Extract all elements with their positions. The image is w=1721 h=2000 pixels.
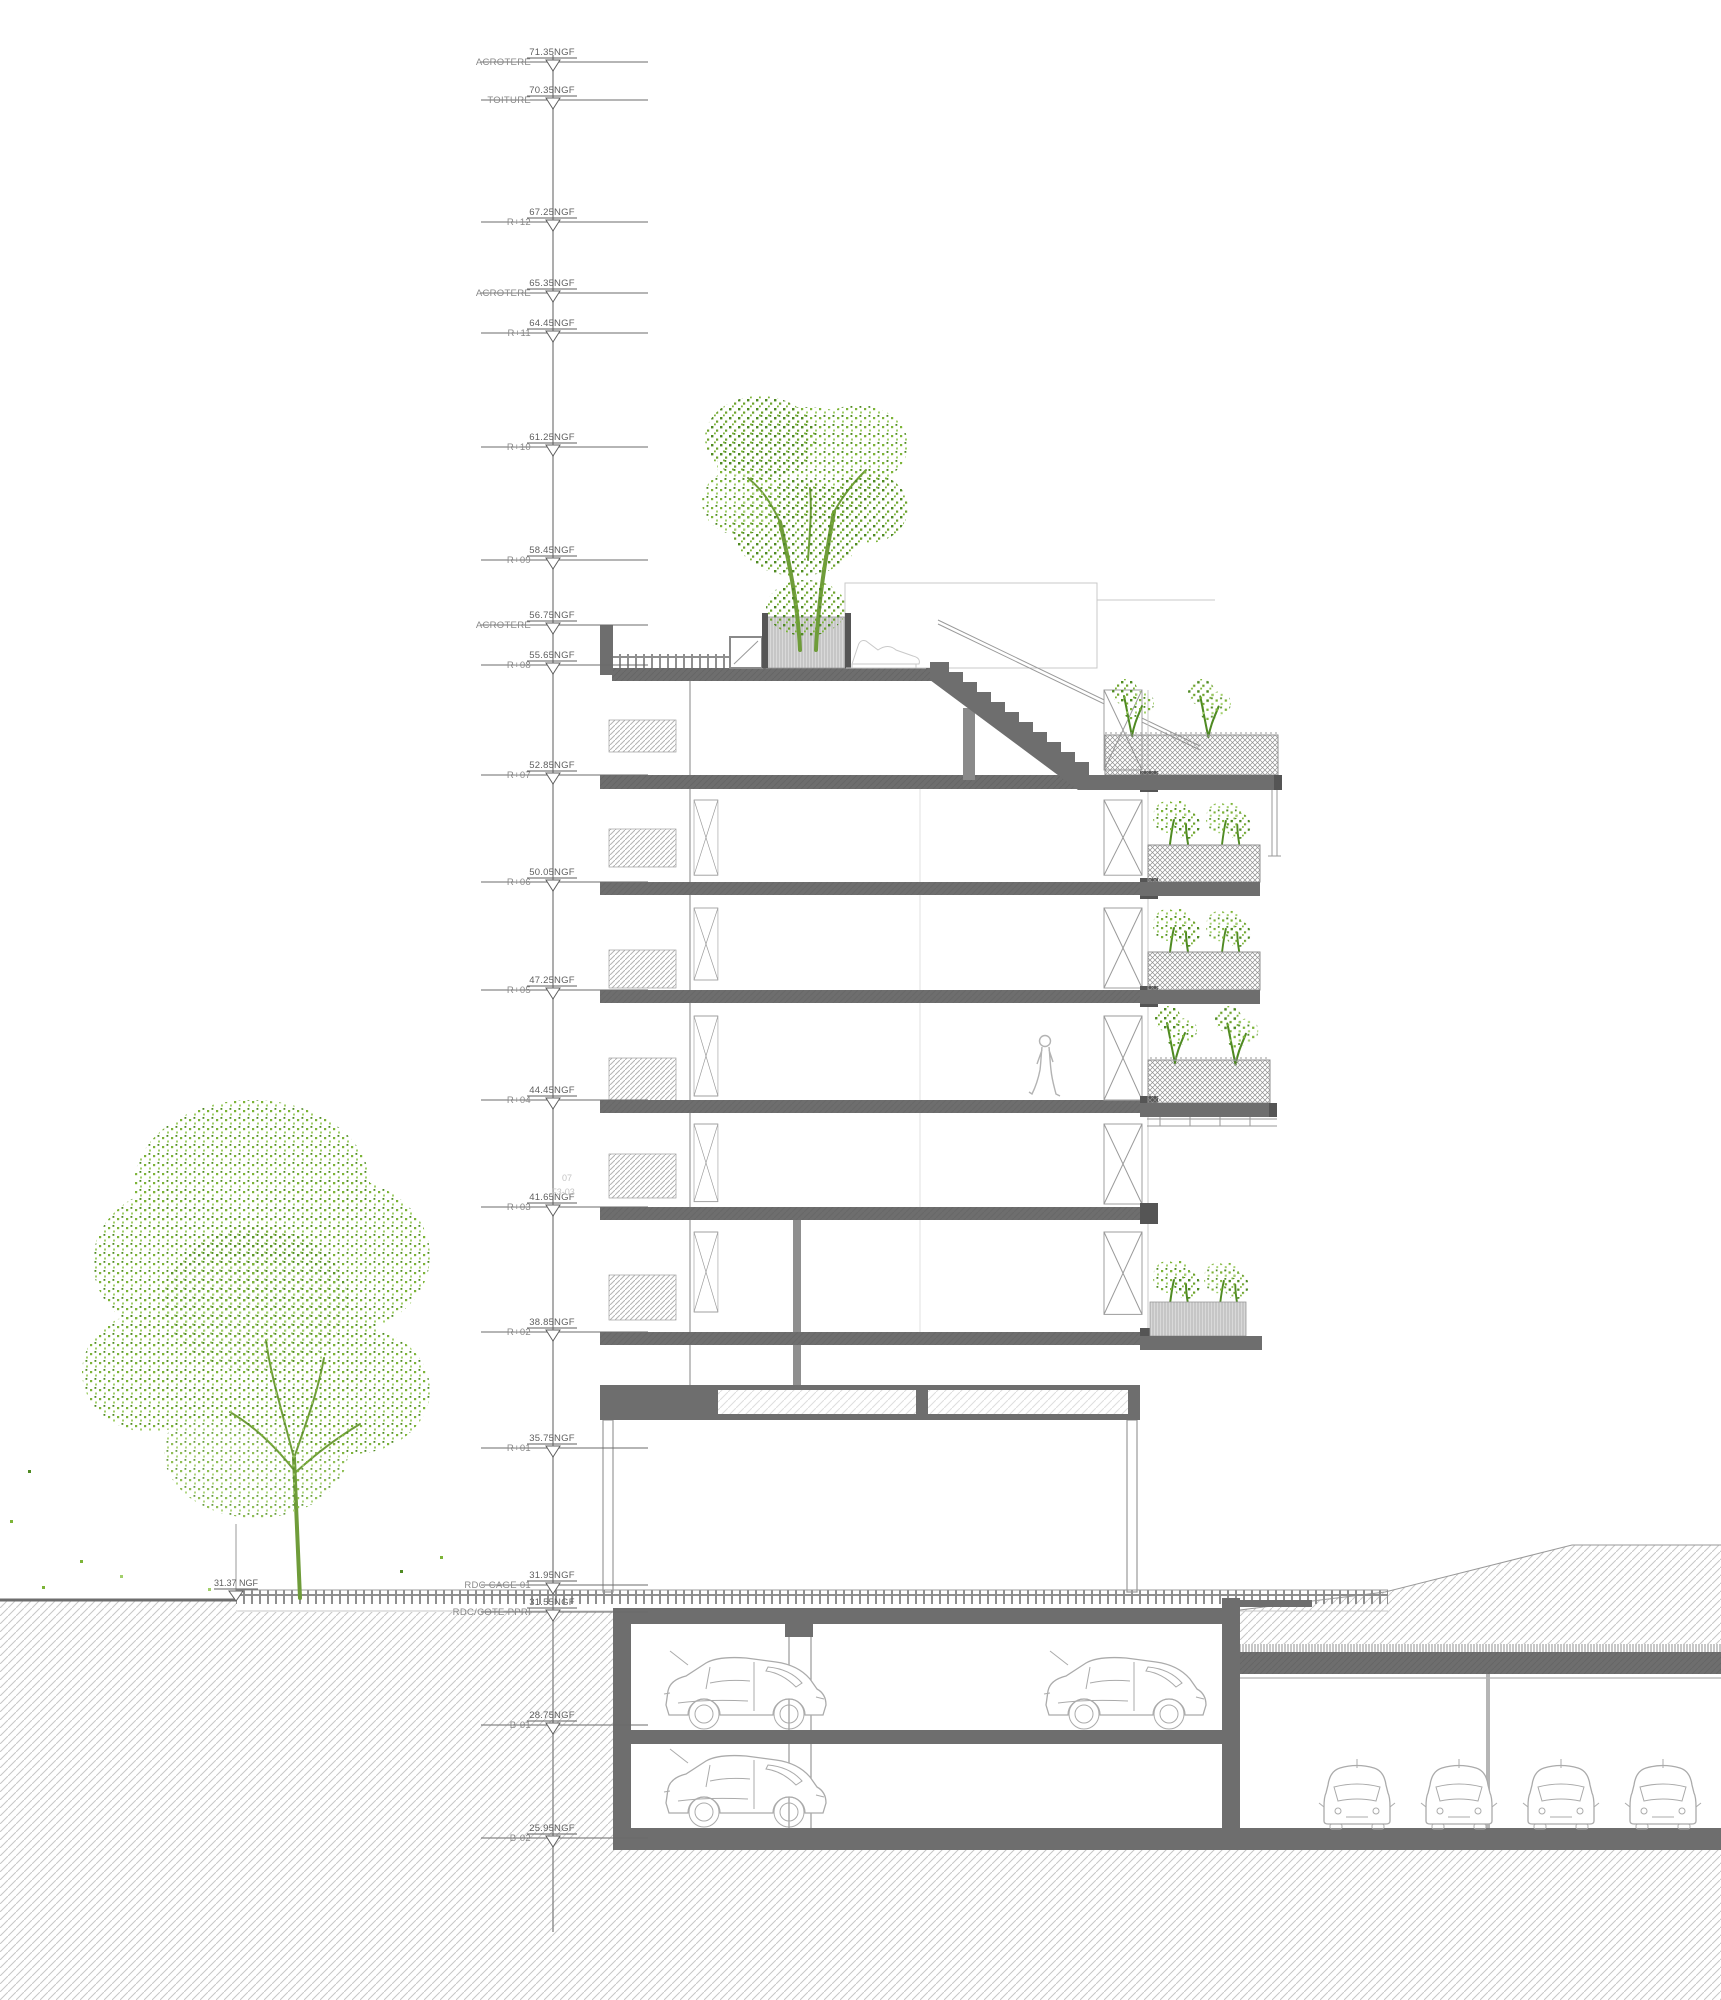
section-drawing-canvas: ACROTERE71.35NGFTOITURE70.35NGFR+1267.25… <box>0 0 1721 2000</box>
support-wall-right <box>1127 1420 1137 1592</box>
level-name: R+11 <box>508 328 531 339</box>
level-value: 47.25NGF <box>529 975 574 986</box>
parked-car-front-3 <box>1523 1759 1599 1829</box>
level-value: 38.85NGF <box>529 1317 574 1328</box>
ceiling-beam <box>785 1620 813 1637</box>
balcony-r06 <box>1140 801 1260 896</box>
roof-tree <box>702 396 908 650</box>
level-value: 55.65NGF <box>529 650 574 661</box>
level-value: 52.85NGF <box>529 760 574 771</box>
parked-car-b01-right <box>1044 1651 1206 1729</box>
level-value: 50.05NGF <box>529 867 574 878</box>
level-name: ACROTERE <box>476 620 531 631</box>
parked-car-front-4 <box>1625 1759 1701 1829</box>
level-name: B-02 <box>510 1833 531 1844</box>
level-name: R+09 <box>507 555 531 566</box>
level-value: 28.75NGF <box>529 1710 574 1721</box>
basement-wall-right <box>1222 1598 1240 1850</box>
right-bay-ceiling-slab-hatch <box>1240 1652 1721 1674</box>
level-value: 71.35NGF <box>529 47 574 58</box>
basement-wall-left <box>613 1608 631 1850</box>
level-marker: R+1164.45NGF <box>481 318 648 342</box>
window-left-r03 <box>694 1232 718 1312</box>
level-value: 31.55NGF <box>529 1597 574 1608</box>
basement-bottom-slab <box>613 1828 1721 1850</box>
stair-wall <box>963 708 975 780</box>
window-left-r05 <box>694 1016 718 1096</box>
level-marker: ACROTERE65.35NGF <box>476 278 648 302</box>
entry-ledge <box>1240 1600 1312 1607</box>
level-marker: TOITURE70.35NGF <box>481 85 648 109</box>
balcony-r04 <box>1140 1006 1277 1126</box>
level-marker: R+1267.25NGF <box>481 207 648 231</box>
person-figure <box>1029 1036 1060 1097</box>
level-name: ACROTERE <box>476 57 531 68</box>
level-name: ACROTERE <box>476 288 531 299</box>
rdc-slab <box>613 1608 1240 1624</box>
window-right-r07 <box>1104 800 1142 875</box>
stair-handrail-2 <box>938 624 1200 750</box>
lounge-chair <box>846 641 926 668</box>
level-name: R+01 <box>507 1443 531 1454</box>
window-left-r06 <box>694 908 718 980</box>
left-facade-windows <box>694 800 718 1312</box>
level-marker: R+1061.25NGF <box>481 432 648 456</box>
ramp-drain-strip <box>1240 1644 1721 1652</box>
level-value: 35.75NGF <box>529 1433 574 1444</box>
roof-bulkhead-outline <box>845 583 1097 668</box>
level-value: 44.45NGF <box>529 1085 574 1096</box>
ground-tree <box>10 1100 443 1598</box>
level-value: 58.45NGF <box>529 545 574 556</box>
balcony-r05 <box>1140 909 1260 1004</box>
level-value: 31.95NGF <box>529 1570 574 1581</box>
level-marker: ACROTERE56.75NGF <box>476 610 648 634</box>
parked-car-b02 <box>664 1749 826 1827</box>
section-drawing: ACROTERE71.35NGFTOITURE70.35NGFR+1267.25… <box>0 0 1721 2000</box>
deck-balustrade-strip <box>236 1590 1388 1604</box>
level-name: R+07 <box>507 770 531 781</box>
level-name: R+02 <box>507 1327 531 1338</box>
window-right-r05 <box>1104 1016 1142 1100</box>
interior-partitions <box>793 788 920 1385</box>
level-value: 56.75NGF <box>529 610 574 621</box>
stair-handrail <box>938 620 1200 746</box>
level-marker: R+0135.75NGF <box>481 1433 648 1457</box>
window-right-r03 <box>1104 1232 1142 1314</box>
parked-car-front-1 <box>1319 1759 1395 1829</box>
level-marker: R+0958.45NGF <box>481 545 648 569</box>
support-wall-left <box>603 1420 613 1592</box>
unit-annotation-line2: F3-03 <box>551 1187 575 1197</box>
level-value: 25.95NGF <box>529 1823 574 1834</box>
level-name: R+12 <box>507 217 531 228</box>
level-name: R+08 <box>507 660 531 671</box>
earth-bottom <box>613 1850 1721 2000</box>
level-name: R+03 <box>507 1202 531 1213</box>
level-name: R+04 <box>507 1095 531 1106</box>
level-value: 61.25NGF <box>529 432 574 443</box>
ground-level-marker: 31.37 NGF <box>214 1524 259 1601</box>
level-marker: ACROTERE71.35NGF <box>476 47 648 71</box>
level-name: R+06 <box>507 877 531 888</box>
balcony-r02 <box>1140 1261 1262 1350</box>
level-name: R+05 <box>507 985 531 996</box>
transfer-slab <box>600 1385 1140 1420</box>
level-markers: ACROTERE71.35NGFTOITURE70.35NGFR+1267.25… <box>453 47 648 1847</box>
window-left-r04 <box>694 1124 718 1202</box>
parked-car-b01-left <box>664 1651 826 1729</box>
level-name: R+10 <box>507 442 531 453</box>
level-name: RDC CAGE 01 <box>464 1580 531 1591</box>
level-value: 67.25NGF <box>529 207 574 218</box>
building-section <box>600 583 1282 1592</box>
earth-left <box>0 1600 613 2000</box>
level-name: B-01 <box>510 1720 531 1731</box>
window-left-r07 <box>694 800 718 875</box>
level-name: TOITURE <box>487 95 531 106</box>
level-value: 70.35NGF <box>529 85 574 96</box>
unit-annotation-line1: 07 <box>562 1173 572 1183</box>
ground-marker-label: 31.37 NGF <box>214 1578 259 1588</box>
basement-slab-b01 <box>631 1730 1222 1744</box>
window-right-r06 <box>1104 908 1142 988</box>
ground-deck <box>236 1590 1388 1611</box>
faint-unit-annotation: 07 F3-03 <box>551 1173 575 1197</box>
level-value: 64.45NGF <box>529 318 574 329</box>
level-name: RDC/COTE PPRI <box>453 1607 531 1618</box>
parked-car-front-2 <box>1421 1759 1497 1829</box>
window-right-r04 <box>1104 1124 1142 1204</box>
level-value: 65.35NGF <box>529 278 574 289</box>
